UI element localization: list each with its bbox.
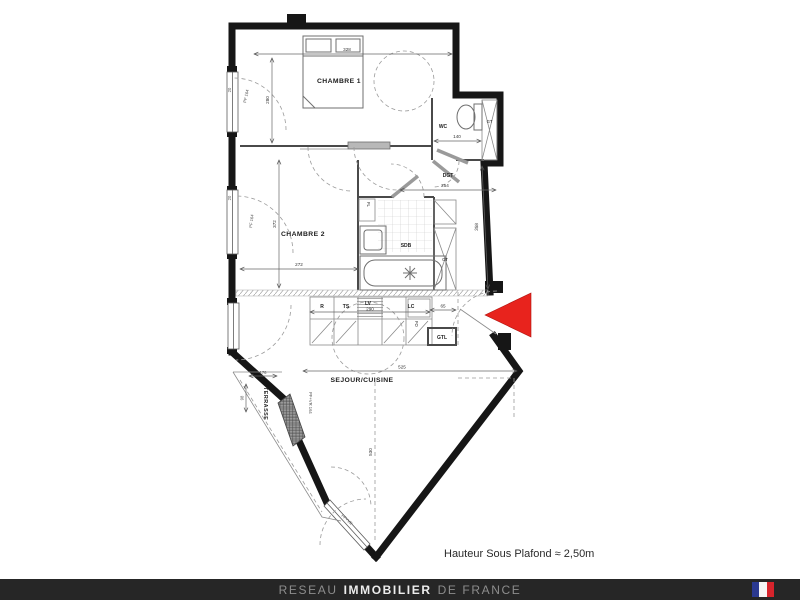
window-bottom-diagonal xyxy=(324,500,370,550)
room-labels: CHAMBRE 1 CHAMBRE 2 WC DGT SDB SEJOUR/CU… xyxy=(262,78,493,420)
dim-entry-width: 65 xyxy=(440,304,446,309)
dim-dgt-width: 254 xyxy=(441,183,449,188)
dim-wc-width: 140 xyxy=(453,134,461,139)
french-flag-icon xyxy=(752,582,774,597)
dim-wall-thickness-1: 20 xyxy=(227,87,232,92)
dim-chambre2-height: 372 xyxy=(272,220,277,228)
dim-chambre1-height: 280 xyxy=(265,96,270,104)
brand-part-reseau: RESEAU xyxy=(279,583,338,597)
room-label-chambre2: CHAMBRE 2 xyxy=(281,231,325,238)
label-gt-sdb: GT xyxy=(442,257,448,262)
dim-terrasse-width: 176 xyxy=(260,370,268,375)
bed xyxy=(303,36,363,108)
footer-bar: RESEAUIMMOBILIERDE FRANCE xyxy=(0,579,800,600)
wall-notch xyxy=(287,14,306,27)
gt-shaft-wc xyxy=(482,100,497,160)
window-sejour xyxy=(228,303,239,349)
shower-symbol xyxy=(403,266,417,280)
window-label-1: PF 164 xyxy=(242,88,250,103)
sdb-door-leaf xyxy=(392,176,418,197)
label-kitchen-r: R xyxy=(320,304,324,310)
label-fl: FL xyxy=(366,202,371,208)
ceiling-height-note: Hauteur Sous Plafond ≈ 2,50m xyxy=(444,548,594,560)
dim-kitchen-width: 290 xyxy=(366,307,374,312)
room-label-chambre1: CHAMBRE 1 xyxy=(317,78,361,85)
floor-transition-strip xyxy=(236,290,488,296)
door-jamb-bottom xyxy=(498,333,511,350)
terrasse-sliding-door xyxy=(278,394,305,446)
gt-shaft-sdb xyxy=(434,200,456,290)
window-label-3: PF+VR 164 xyxy=(308,392,313,414)
clearance-circle-chambre1 xyxy=(374,51,434,111)
room-label-terrasse: TERRASSE xyxy=(262,387,268,420)
floor-plan: 328 280 140 254 358 272 372 290 65 525 5… xyxy=(0,0,800,600)
room-label-sdb: SDB xyxy=(401,243,412,249)
dimension-labels: 328 280 140 254 358 272 372 290 65 525 5… xyxy=(227,47,479,526)
label-gt-wc: GT xyxy=(487,119,493,124)
brand-part-defrance: DE FRANCE xyxy=(438,583,522,597)
dim-chambre1-width: 328 xyxy=(343,47,351,52)
dim-chambre2-width: 272 xyxy=(295,262,303,267)
room-label-sejour: SEJOUR/CUISINE xyxy=(330,377,393,384)
dim-terrasse-depth: 98 xyxy=(240,395,245,400)
dim-wall-thickness-2: 20 xyxy=(227,195,232,200)
window-label-2: PF 164 xyxy=(248,213,255,228)
window-chambre1 xyxy=(227,72,238,132)
toilet xyxy=(457,104,482,130)
room-label-wc: WC xyxy=(439,124,448,130)
dim-sejour-width: 525 xyxy=(398,365,406,370)
label-kitchen-ts: TS xyxy=(343,304,350,310)
dgt-door-leaf xyxy=(437,150,468,163)
brand-text: RESEAUIMMOBILIERDE FRANCE xyxy=(276,583,525,597)
label-gtl: GTL xyxy=(437,335,447,341)
label-kitchen-fo: FO xyxy=(414,321,419,328)
dim-sejour-height: 530 xyxy=(368,448,373,456)
dim-hall-height: 358 xyxy=(474,223,479,231)
entrance-arrow xyxy=(485,293,531,337)
room-label-dgt: DGT xyxy=(443,173,454,179)
flag-stripe-white xyxy=(759,582,766,597)
brand-part-immobilier: IMMOBILIER xyxy=(344,583,432,597)
label-kitchen-lv: LV xyxy=(365,301,372,307)
flag-stripe-blue xyxy=(752,582,759,597)
label-kitchen-lc: LC xyxy=(408,304,415,310)
floor-plan-page: 328 280 140 254 358 272 372 290 65 525 5… xyxy=(0,0,800,600)
flag-stripe-red xyxy=(767,582,774,597)
